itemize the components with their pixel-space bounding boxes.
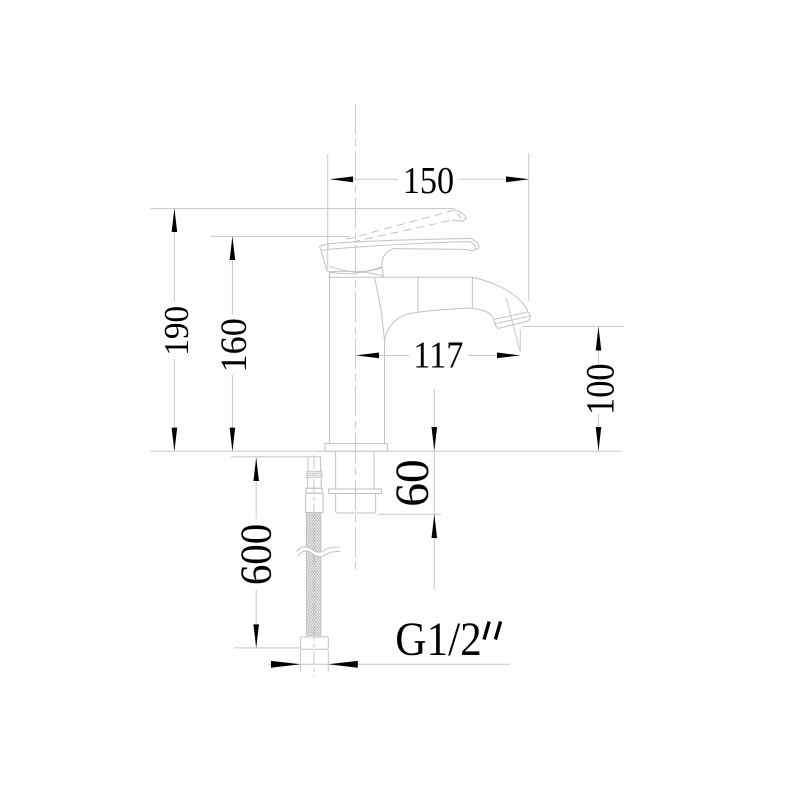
svg-text:60: 60 xyxy=(387,459,439,507)
svg-text:160: 160 xyxy=(214,318,254,372)
svg-text:600: 600 xyxy=(232,524,281,585)
svg-text:G1/2: G1/2 xyxy=(395,612,481,666)
svg-text:190: 190 xyxy=(158,306,196,356)
svg-text:150: 150 xyxy=(403,160,454,202)
svg-text:117: 117 xyxy=(413,334,463,376)
svg-text:100: 100 xyxy=(579,363,623,415)
